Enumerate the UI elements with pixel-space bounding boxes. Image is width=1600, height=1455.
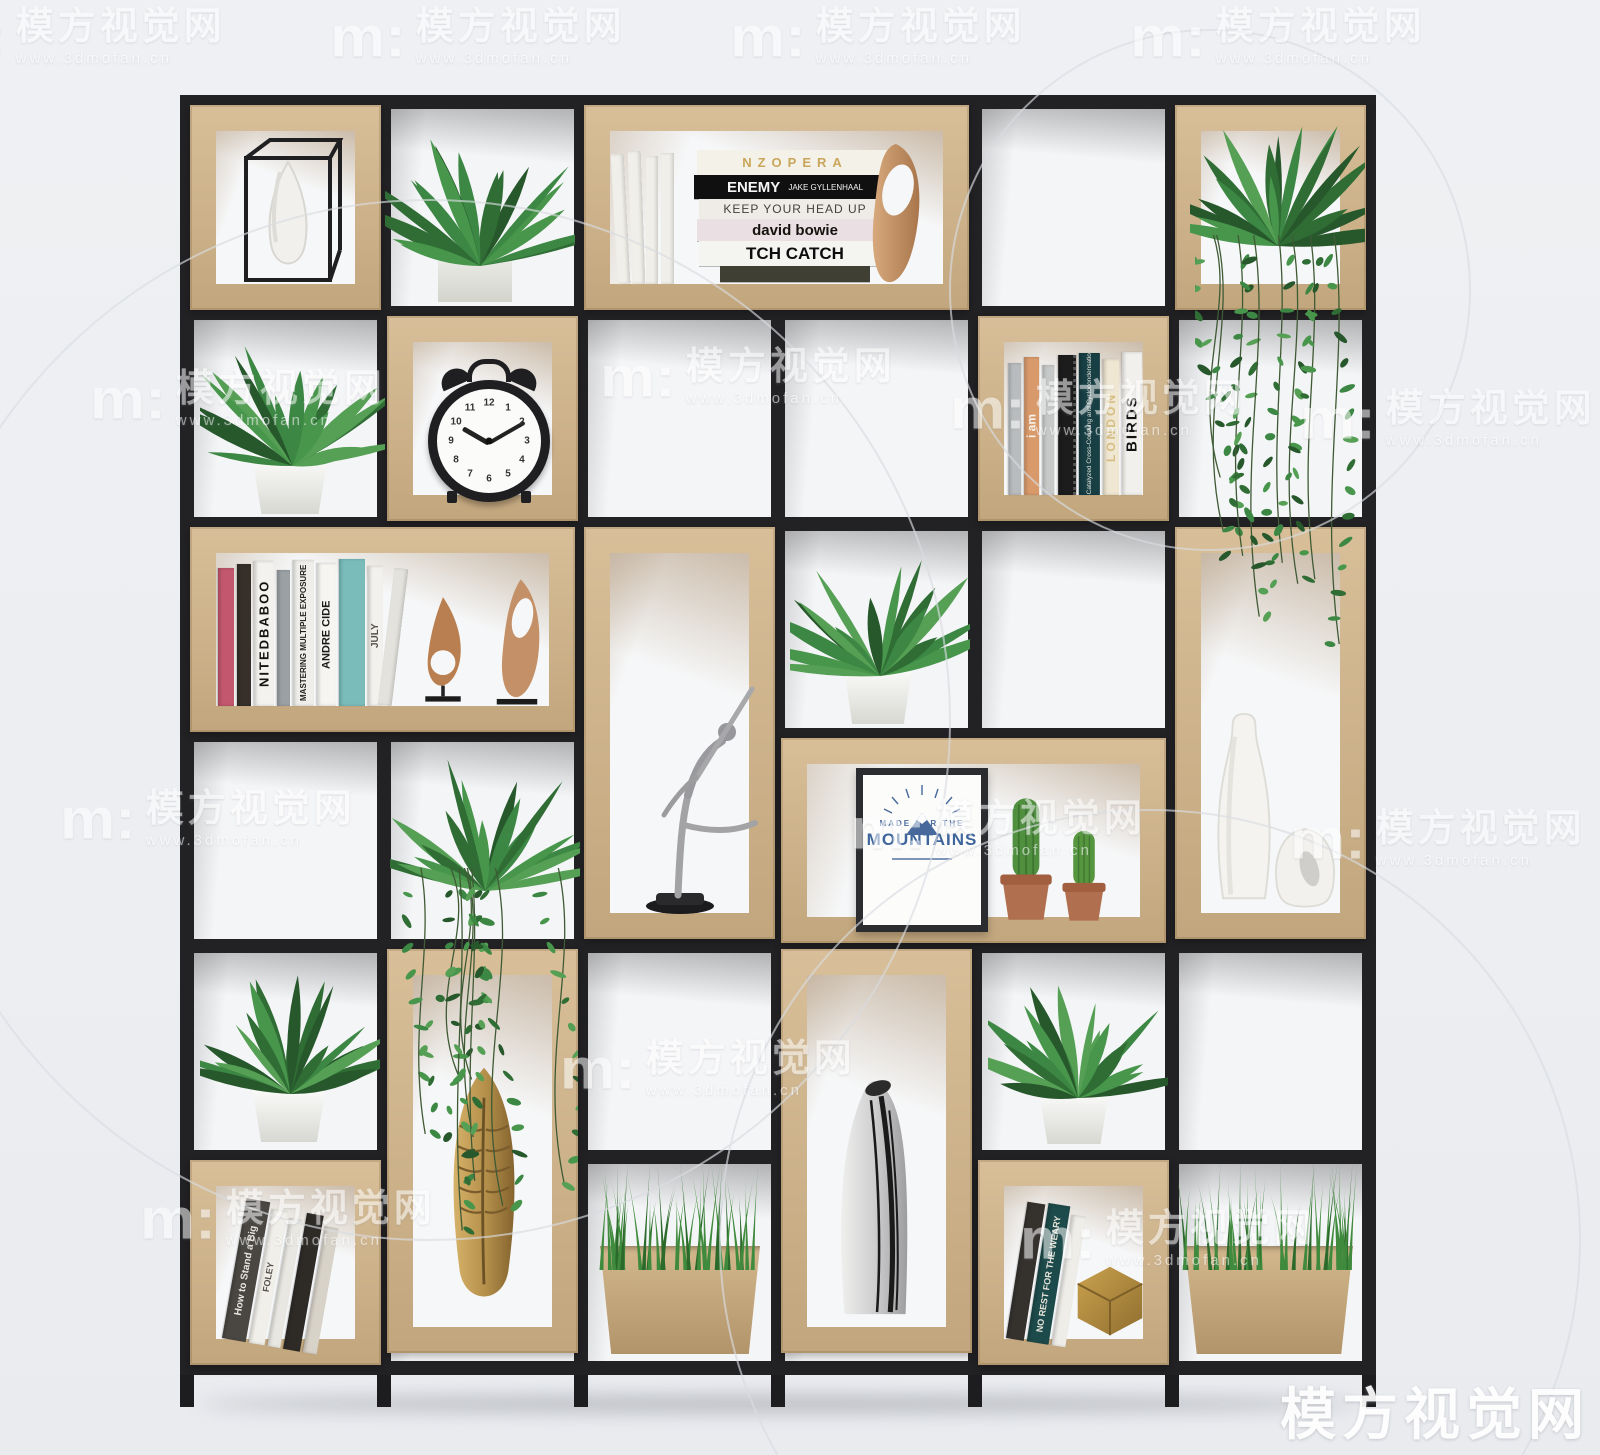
shelf-cell xyxy=(785,320,968,517)
clock-numeral: 10 xyxy=(451,417,462,428)
wood-ring-sculpture xyxy=(848,138,936,286)
clock-numeral: 12 xyxy=(483,398,494,409)
top-vertical-books xyxy=(614,150,684,284)
book-spiral xyxy=(1058,355,1076,495)
vine-plant-trails xyxy=(398,868,578,1268)
hanging-plant-vines xyxy=(1195,235,1365,655)
mountains-print: MADE FOR THE MOUNTAINS xyxy=(856,768,988,932)
clock-numeral: 7 xyxy=(467,468,473,479)
book-palladium: Palladium(II)-Catalyzed Cross-Coupling a… xyxy=(1079,353,1100,495)
shelf-cell xyxy=(982,109,1165,306)
horizontal-rail xyxy=(180,939,1376,953)
book-teal xyxy=(339,559,365,706)
hanging-plant-top xyxy=(1190,110,1365,250)
shelf-leg xyxy=(968,1375,982,1407)
shelf-leg xyxy=(377,1375,391,1407)
chrome-vase xyxy=(818,1068,930,1326)
book-birds: BIRDS xyxy=(1122,352,1142,495)
mountain-rays-icon xyxy=(876,783,968,847)
book-dark-arrow xyxy=(237,564,251,706)
grass-right xyxy=(1178,1152,1358,1270)
right-book-row: i am Palladium(II)-Catalyzed Cross-Coupl… xyxy=(1008,352,1142,495)
potted-plant-top xyxy=(385,120,575,270)
cactus-short xyxy=(1052,820,1116,926)
grass-center xyxy=(594,1152,766,1270)
gold-hexagon-prism xyxy=(1072,1262,1148,1340)
potted-plant-left xyxy=(200,335,385,470)
clock-numeral: 4 xyxy=(519,455,525,466)
wood-teardrop-sculpture xyxy=(412,588,474,708)
clock-numeral: 5 xyxy=(505,468,511,479)
book-gray2 xyxy=(277,570,290,706)
potted-plant-lower-left xyxy=(200,968,380,1098)
wood-abstract-sculpture xyxy=(480,572,554,710)
shelf-leg xyxy=(1165,1375,1179,1407)
dancer-figurine xyxy=(600,650,760,920)
book-i-am: i am xyxy=(1024,357,1039,495)
small-white-vase xyxy=(1268,822,1342,912)
shelf-cell xyxy=(588,320,771,517)
shelf-cell xyxy=(588,953,771,1150)
book-pink xyxy=(218,568,234,706)
caged-vase-sculpture xyxy=(228,128,346,288)
display-shelf: NZOPERA ENEMY JAKE GYLLENHAAL KEEP YOUR … xyxy=(0,0,1600,1455)
potted-plant-center xyxy=(790,548,970,680)
book-nitedbaboo: NITEDBABOO xyxy=(254,561,274,706)
clock-numeral: 6 xyxy=(486,474,492,485)
alarm-clock: 121234567891011 xyxy=(428,380,550,502)
shelf-leg xyxy=(574,1375,588,1407)
potted-plant-lower-right xyxy=(988,972,1168,1102)
book-andre-cide: ANDRE CIDE xyxy=(317,563,336,706)
book-gray-redband xyxy=(1008,363,1021,495)
bottom-left-book-row: How to Stand a Big FOLEY xyxy=(222,1194,375,1360)
shelf-leg xyxy=(180,1375,194,1407)
shelf-leg xyxy=(1362,1375,1376,1407)
shelf-leg xyxy=(771,1375,785,1407)
clock-numeral: 9 xyxy=(448,436,454,447)
book-mastering: MASTERING MULTIPLE EXPOSURE xyxy=(293,560,314,706)
shelf-cell xyxy=(194,742,377,939)
shelf-cell xyxy=(982,531,1165,728)
clock-numeral: 3 xyxy=(524,436,530,447)
clock-numeral: 2 xyxy=(519,417,525,428)
clock-numeral: 8 xyxy=(453,455,459,466)
clock-handle xyxy=(467,359,511,382)
shelf-scene: NZOPERA ENEMY JAKE GYLLENHAAL KEEP YOUR … xyxy=(0,0,1600,1455)
book-london: LONDON xyxy=(1103,359,1119,495)
clock-numeral: 11 xyxy=(465,403,476,414)
clock-numeral: 1 xyxy=(505,403,511,414)
shelf-cell xyxy=(1179,953,1362,1150)
left-book-row: NITEDBABOO MASTERING MULTIPLE EXPOSURE A… xyxy=(218,558,408,706)
book-gray xyxy=(1042,365,1054,495)
